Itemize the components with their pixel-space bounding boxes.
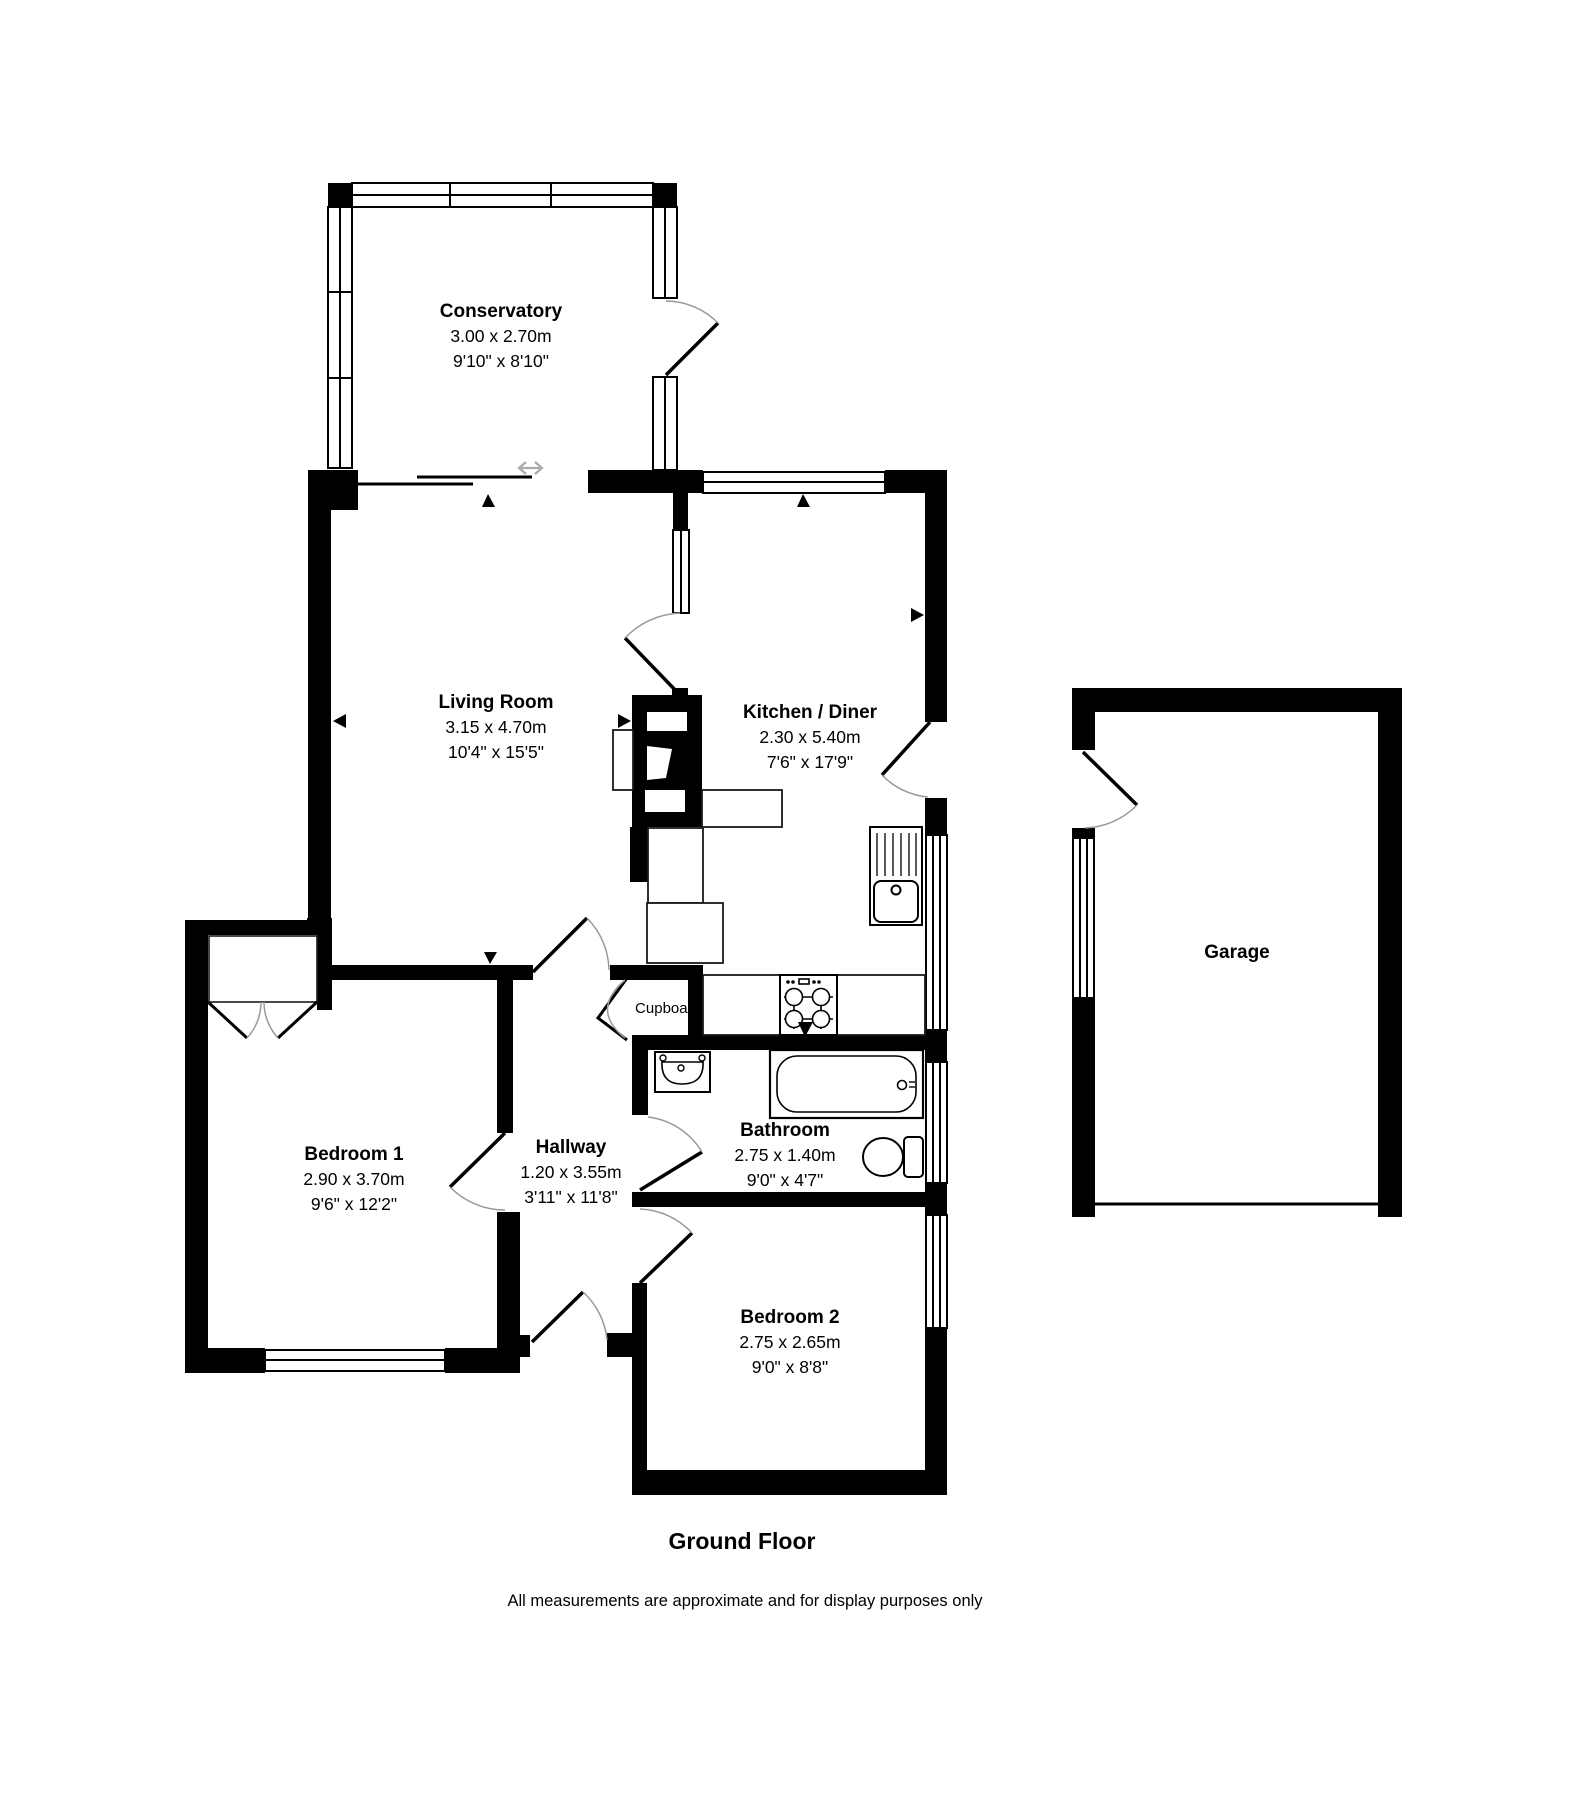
floor-plan: Conservatory 3.00 x 2.70m 9'10" x 8'10" … [0, 0, 1585, 1808]
room-label-conservatory: Conservatory 3.00 x 2.70m 9'10" x 8'10" [440, 299, 563, 374]
front-door [532, 1292, 607, 1342]
bedroom1-door [450, 1133, 505, 1210]
bedroom2-window [926, 1215, 947, 1328]
room-dimensions-imperial: 9'0" x 8'8" [739, 1355, 840, 1380]
room-dimensions-imperial: 3'11" x 11'8" [520, 1185, 621, 1210]
room-name: Hallway [520, 1135, 621, 1160]
room-dimensions-metric: 3.00 x 2.70m [440, 324, 563, 349]
living-kitchen-window [673, 530, 689, 613]
room-label-hallway: Hallway 1.20 x 3.55m 3'11" x 11'8" [520, 1135, 621, 1210]
floor-title: Ground Floor [669, 1528, 816, 1555]
garage-window [1073, 838, 1094, 998]
room-dimensions-metric: 1.20 x 3.55m [520, 1160, 621, 1185]
room-label-garage: Garage [1204, 940, 1269, 965]
bedroom2-door [640, 1209, 692, 1283]
room-label-bedroom-2: Bedroom 2 2.75 x 2.65m 9'0" x 8'8" [739, 1305, 840, 1380]
room-dimensions-metric: 2.90 x 3.70m [303, 1167, 404, 1192]
room-label-kitchen-diner: Kitchen / Diner 2.30 x 5.40m 7'6" x 17'9… [743, 700, 877, 775]
room-name: Bathroom [734, 1118, 835, 1143]
disclaimer-text: All measurements are approximate and for… [507, 1592, 982, 1611]
room-label-living-room: Living Room 3.15 x 4.70m 10'4" x 15'5" [438, 690, 553, 765]
toilet [863, 1137, 923, 1177]
room-dimensions-metric: 2.75 x 2.65m [739, 1330, 840, 1355]
room-name: Bedroom 2 [739, 1305, 840, 1330]
slide-direction-arrow [519, 462, 542, 474]
room-dimensions-imperial: 10'4" x 15'5" [438, 740, 553, 765]
room-dimensions-imperial: 9'6" x 12'2" [303, 1192, 404, 1217]
bath [770, 1050, 923, 1118]
living-to-kitchen-door [625, 613, 680, 695]
room-name: Bedroom 1 [303, 1142, 404, 1167]
wardrobe [208, 936, 317, 1038]
room-name: Living Room [438, 690, 553, 715]
sliding-door [358, 462, 542, 484]
basin [655, 1052, 710, 1092]
living-to-hallway-door [533, 918, 609, 972]
room-label-bedroom-1: Bedroom 1 2.90 x 3.70m 9'6" x 12'2" [303, 1142, 404, 1217]
room-label-cupboard: Cupboard [635, 1000, 701, 1018]
walls [185, 183, 1402, 1495]
chimney-breast [632, 688, 702, 827]
kitchen-back-door [882, 722, 930, 797]
room-dimensions-imperial: 9'10" x 8'10" [440, 349, 563, 374]
kitchen-sink [870, 827, 922, 925]
room-name: Kitchen / Diner [743, 700, 877, 725]
room-dimensions-imperial: 9'0" x 4'7" [734, 1168, 835, 1193]
garage-side-door [1083, 752, 1137, 828]
bathroom-door [640, 1117, 702, 1190]
room-name: Garage [1204, 940, 1269, 965]
fireplace-hearth [613, 730, 633, 790]
room-label-bathroom: Bathroom 2.75 x 1.40m 9'0" x 4'7" [734, 1118, 835, 1193]
room-dimensions-metric: 3.15 x 4.70m [438, 715, 553, 740]
bedroom1-window [265, 1350, 445, 1371]
bathroom-window [926, 1062, 947, 1183]
cupboard-door [598, 978, 627, 1040]
room-dimensions-metric: 2.75 x 1.40m [734, 1143, 835, 1168]
conservatory-door [666, 301, 718, 375]
room-dimensions-metric: 2.30 x 5.40m [743, 725, 877, 750]
room-name: Conservatory [440, 299, 563, 324]
kitchen-top-window [703, 472, 885, 493]
room-dimensions-imperial: 7'6" x 17'9" [743, 750, 877, 775]
kitchen-right-window [926, 835, 947, 1030]
